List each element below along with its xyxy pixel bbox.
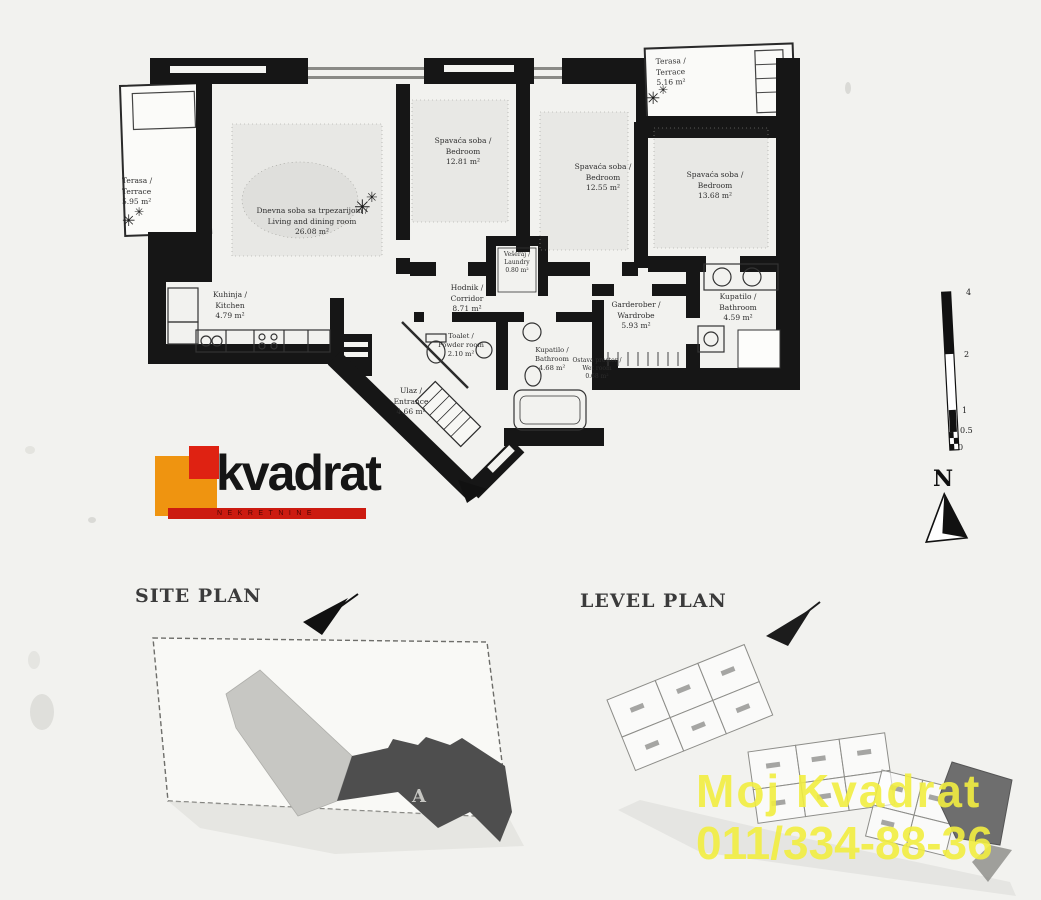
- scale-label-0-5: 0.5: [960, 426, 973, 435]
- room-label-bedroom-1: Spavaća soba / Bedroom 12.81 m²: [408, 136, 518, 168]
- watermark-phone: 011/334-88-36: [696, 818, 993, 870]
- north-arrow-main: [921, 492, 967, 542]
- kvadrat-logo: kvadrat NEKRETNINE: [152, 446, 370, 526]
- room-label-bedroom-2: Spavaća soba / Bedroom 12.55 m²: [548, 162, 658, 194]
- level-plan-title: LEVEL PLAN: [580, 590, 727, 612]
- room-label-wardrobe: Garderober / Wardrobe 5.93 m²: [596, 300, 676, 332]
- site-plan-building-label: A: [412, 786, 426, 807]
- site-plan-north-icon: [303, 598, 348, 635]
- room-label-bathroom-2: Kupatilo / Bathroom 4.59 m²: [702, 292, 774, 324]
- logo-red-square-icon: [189, 446, 219, 479]
- logo-wordmark: kvadrat: [216, 448, 380, 498]
- north-label: N: [933, 466, 953, 492]
- site-plan-drawing: [153, 594, 524, 854]
- scale-label-0: 0: [958, 443, 963, 452]
- room-label-corridor: Hodnik / Corridor 8.71 m²: [430, 283, 504, 315]
- room-label-bedroom-3: Spavaća soba / Bedroom 13.68 m²: [660, 170, 770, 202]
- floor-plan-document: ✳ ✳ ✳ ✳ ✳ ✳: [0, 0, 1041, 900]
- logo-subtitle-bar: NEKRETNINE: [168, 508, 366, 519]
- watermark: Moj Kvadrat 011/334-88-36: [696, 766, 993, 869]
- room-label-terrace-top: Terasa / Terrace 5.16 m²: [655, 55, 716, 89]
- room-label-laundry: Vešeraj / Laundry 0.80 m²: [494, 251, 540, 274]
- apartment-plan: ✳ ✳ ✳ ✳ ✳ ✳: [120, 43, 800, 503]
- room-label-terrace-left: Terasa / Terrace 5.95 m²: [122, 176, 178, 208]
- room-label-wet-room: Ostava prostor / Wet room 0.68 m²: [564, 357, 630, 380]
- room-label-toilet: Toalet / Powder room 2.10 m²: [428, 332, 494, 360]
- room-label-kitchen: Kuhinja / Kitchen 4.79 m²: [200, 290, 260, 322]
- svg-text:✳: ✳: [366, 190, 378, 206]
- room-label-entrance: Ulaz / Entrance 4.66 m²: [382, 386, 440, 418]
- logo-subtitle: NEKRETNINE: [217, 510, 317, 517]
- room-label-living-dining: Dnevna soba sa trpezarijom / Living and …: [230, 206, 394, 238]
- scale-label-4: 4: [966, 288, 971, 297]
- scale-bar: [942, 292, 959, 450]
- scale-label-1: 1: [962, 406, 967, 415]
- scale-label-2: 2: [964, 350, 969, 359]
- site-plan-title: SITE PLAN: [135, 585, 262, 607]
- watermark-name: Moj Kvadrat: [696, 766, 993, 818]
